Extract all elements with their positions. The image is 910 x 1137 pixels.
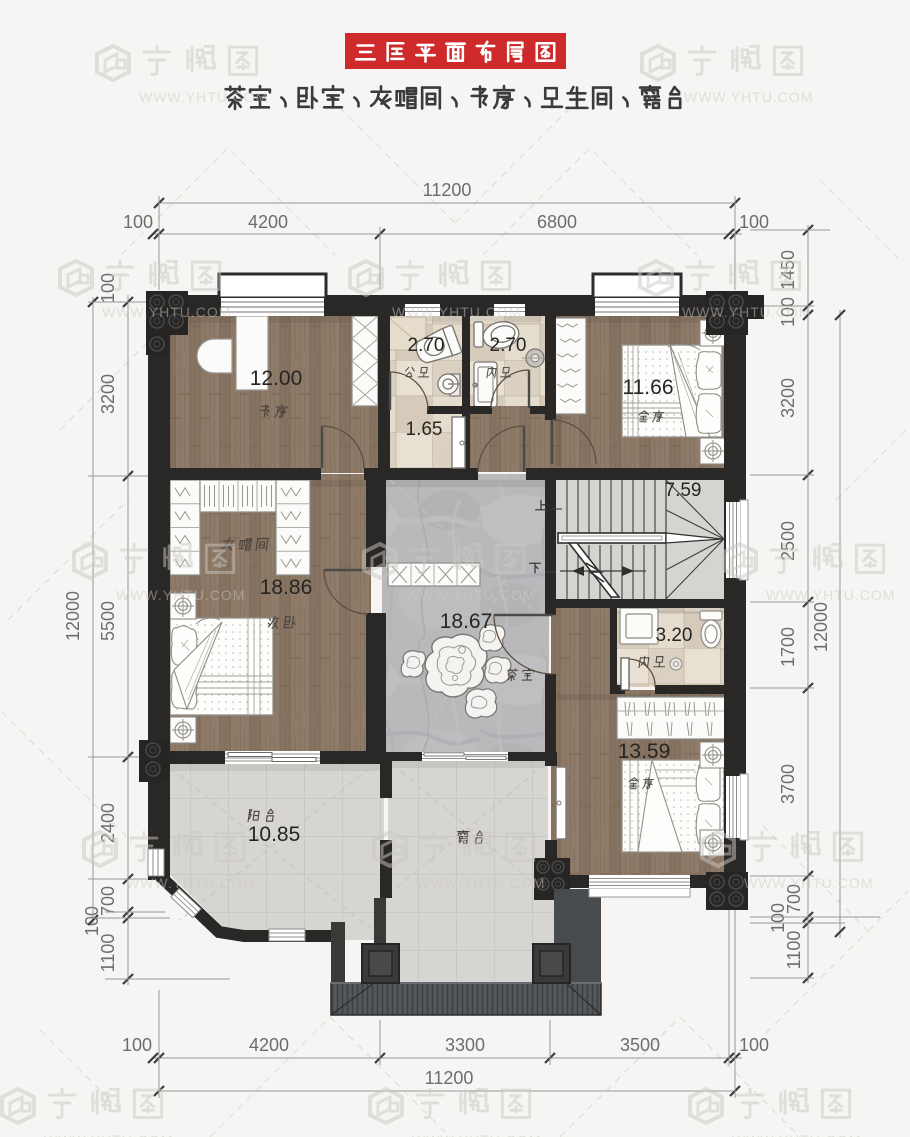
svg-text:4200: 4200 — [248, 212, 288, 232]
svg-text:WWW.YHTU.COM: WWW.YHTU.COM — [732, 1132, 861, 1137]
svg-text:3300: 3300 — [445, 1035, 485, 1055]
svg-text:1.65: 1.65 — [406, 419, 443, 440]
svg-text:WWW.YHTU.COM: WWW.YHTU.COM — [684, 89, 813, 105]
svg-text:3.20: 3.20 — [656, 625, 693, 646]
svg-text:3700: 3700 — [778, 764, 798, 804]
svg-text:WWW.YHTU.COM: WWW.YHTU.COM — [126, 875, 255, 891]
svg-text:12000: 12000 — [63, 591, 83, 641]
svg-text:3500: 3500 — [620, 1035, 660, 1055]
svg-text:3200: 3200 — [778, 378, 798, 418]
svg-text:2.70: 2.70 — [490, 335, 527, 356]
svg-text:WWW.YHTU.COM: WWW.YHTU.COM — [766, 587, 895, 603]
svg-text:5500: 5500 — [98, 601, 118, 641]
svg-text:13.59: 13.59 — [618, 740, 671, 763]
svg-text:11200: 11200 — [425, 1068, 474, 1088]
svg-text:11.66: 11.66 — [623, 376, 674, 399]
svg-text:WWW.YHTU.COM: WWW.YHTU.COM — [139, 89, 268, 105]
svg-text:2500: 2500 — [778, 521, 798, 561]
svg-text:WWW.YHTU.COM: WWW.YHTU.COM — [682, 304, 811, 320]
svg-text:100: 100 — [122, 1035, 152, 1055]
svg-text:100: 100 — [768, 903, 788, 933]
svg-text:2.70: 2.70 — [408, 335, 445, 356]
svg-text:WWW.YHTU.COM: WWW.YHTU.COM — [412, 1132, 541, 1137]
svg-text:1100: 1100 — [98, 934, 118, 973]
svg-text:18.67: 18.67 — [440, 610, 493, 633]
svg-text:WWW.YHTU.COM: WWW.YHTU.COM — [116, 587, 245, 603]
svg-text:3200: 3200 — [98, 374, 118, 414]
svg-text:7.59: 7.59 — [665, 480, 702, 501]
svg-text:WWW.YHTU.COM: WWW.YHTU.COM — [44, 1132, 173, 1137]
svg-text:18.86: 18.86 — [260, 576, 313, 599]
svg-text:1700: 1700 — [778, 627, 798, 667]
svg-text:100: 100 — [739, 1035, 769, 1055]
svg-text:WWW.YHTU.COM: WWW.YHTU.COM — [392, 304, 521, 320]
svg-text:6800: 6800 — [537, 212, 577, 232]
svg-text:10.85: 10.85 — [248, 823, 301, 846]
svg-text:100: 100 — [739, 212, 769, 232]
svg-text:11200: 11200 — [423, 180, 472, 200]
svg-text:WWW.YHTU.COM: WWW.YHTU.COM — [744, 875, 873, 891]
svg-text:1100: 1100 — [784, 931, 804, 970]
svg-text:12000: 12000 — [811, 602, 831, 652]
svg-text:WWW.YHTU.COM: WWW.YHTU.COM — [102, 304, 231, 320]
svg-text:WWW.YHTU.COM: WWW.YHTU.COM — [416, 875, 545, 891]
svg-text:4200: 4200 — [249, 1035, 289, 1055]
svg-text:100: 100 — [123, 212, 153, 232]
svg-text:12.00: 12.00 — [250, 367, 303, 390]
svg-text:WWW.YHTU.COM: WWW.YHTU.COM — [406, 587, 535, 603]
